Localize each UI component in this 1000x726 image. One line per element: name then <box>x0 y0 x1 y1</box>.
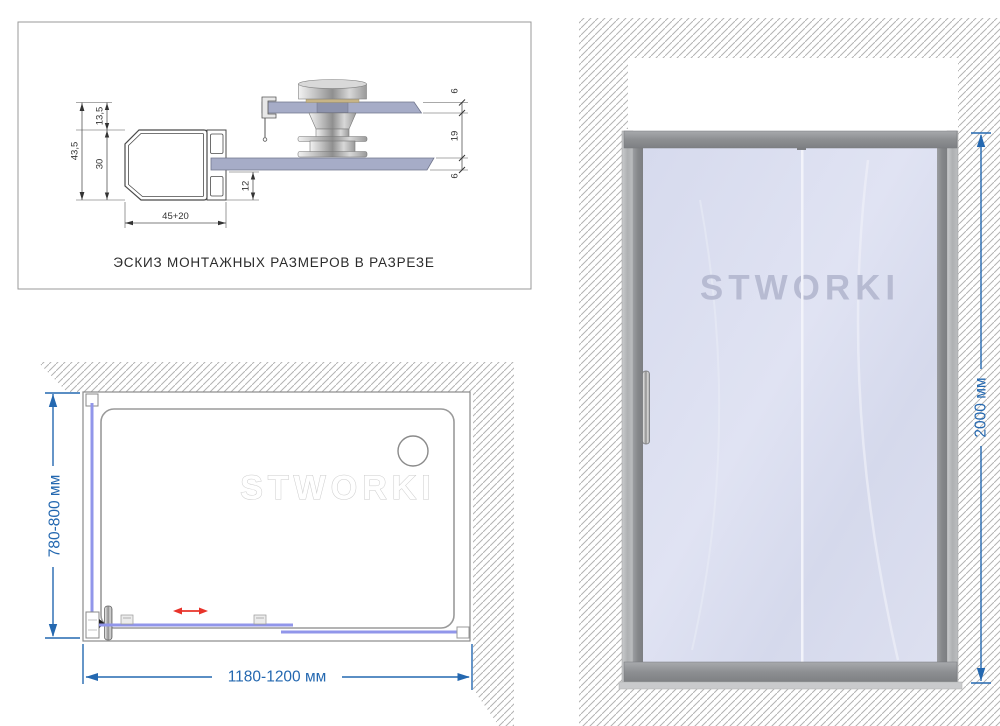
roller-wheel-waist <box>310 141 355 152</box>
profile-cell-top <box>211 134 224 154</box>
dim-total-height: 43,5 <box>70 142 81 161</box>
plan-wall-hatch-right <box>473 392 514 726</box>
roller-wheel-bottom-flange <box>298 152 367 158</box>
bottom-sill <box>619 682 962 689</box>
plan-width-dimension: 1180-1200 мм <box>83 644 472 690</box>
plan-brand-watermark: STWORKI <box>240 469 436 507</box>
wall-profile-left <box>622 131 633 688</box>
roller-washer <box>306 99 359 103</box>
front-wall-hatch-left-upper <box>579 58 628 129</box>
frame-column-left <box>633 148 643 667</box>
side-glass-panel-line <box>91 403 94 614</box>
plan-width-label: 1180-1200 мм <box>228 669 327 686</box>
roller-block-right <box>254 615 266 624</box>
fixed-panel-line <box>281 631 459 634</box>
front-height-label: 2000 мм <box>973 377 990 437</box>
front-floor-hatch <box>579 689 1000 726</box>
roller-cap-top <box>299 80 367 89</box>
dim-door-glass-thickness: 6 <box>450 88 461 93</box>
wall-profile-right <box>947 131 958 688</box>
dim-panel-gap: 19 <box>450 131 461 142</box>
door-glass <box>643 148 937 667</box>
section-panel-border <box>18 22 531 289</box>
section-fixed-glass <box>211 158 434 170</box>
dim-profile-height: 30 <box>95 159 106 170</box>
front-wall-hatch-top <box>579 18 1000 58</box>
roller-bushing <box>309 113 356 129</box>
plan-depth-dimension: 780-800 мм <box>45 393 80 638</box>
dim-rail-offset: 13,5 <box>95 107 106 126</box>
front-view-panel: STWORKI 2000 мм <box>579 18 1000 726</box>
drain-circle <box>398 436 428 466</box>
front-wall-hatch-right <box>958 58 1000 689</box>
wall-connector-right <box>457 627 469 638</box>
magnet-profile <box>105 606 113 640</box>
dim-profile-width: 45+20 <box>162 211 189 222</box>
drawing-canvas: 43,5 13,5 30 12 45+20 <box>0 0 1000 726</box>
front-brand-watermark: STWORKI <box>700 269 900 308</box>
section-sketch-panel: 43,5 13,5 30 12 45+20 <box>18 22 531 289</box>
door-handle <box>643 371 650 444</box>
top-rail <box>624 131 957 148</box>
panel-divider <box>801 150 804 667</box>
plan-depth-label: 780-800 мм <box>47 475 64 558</box>
dim-fixed-glass-thickness: 6 <box>450 173 461 178</box>
roller-block-left <box>121 615 133 624</box>
roller-bushing-neck <box>316 129 349 137</box>
roller-shaft-block <box>317 102 348 113</box>
bottom-rail <box>624 662 957 682</box>
plan-wall-hatch-top <box>38 362 514 392</box>
plan-view-panel: STWORKI 780-800 мм <box>38 362 514 726</box>
frame-column-right <box>937 148 947 667</box>
dim-glass-inset: 12 <box>241 181 252 192</box>
section-wall-profile <box>125 130 207 200</box>
profile-cell-bottom <box>211 177 224 197</box>
corner-bracket-bottom <box>86 612 99 638</box>
technical-drawing-page: 43,5 13,5 30 12 45+20 <box>0 0 1000 726</box>
front-wall-hatch-left <box>579 129 622 689</box>
section-caption: ЭСКИЗ МОНТАЖНЫХ РАЗМЕРОВ В РАЗРЕЗЕ <box>113 255 434 270</box>
